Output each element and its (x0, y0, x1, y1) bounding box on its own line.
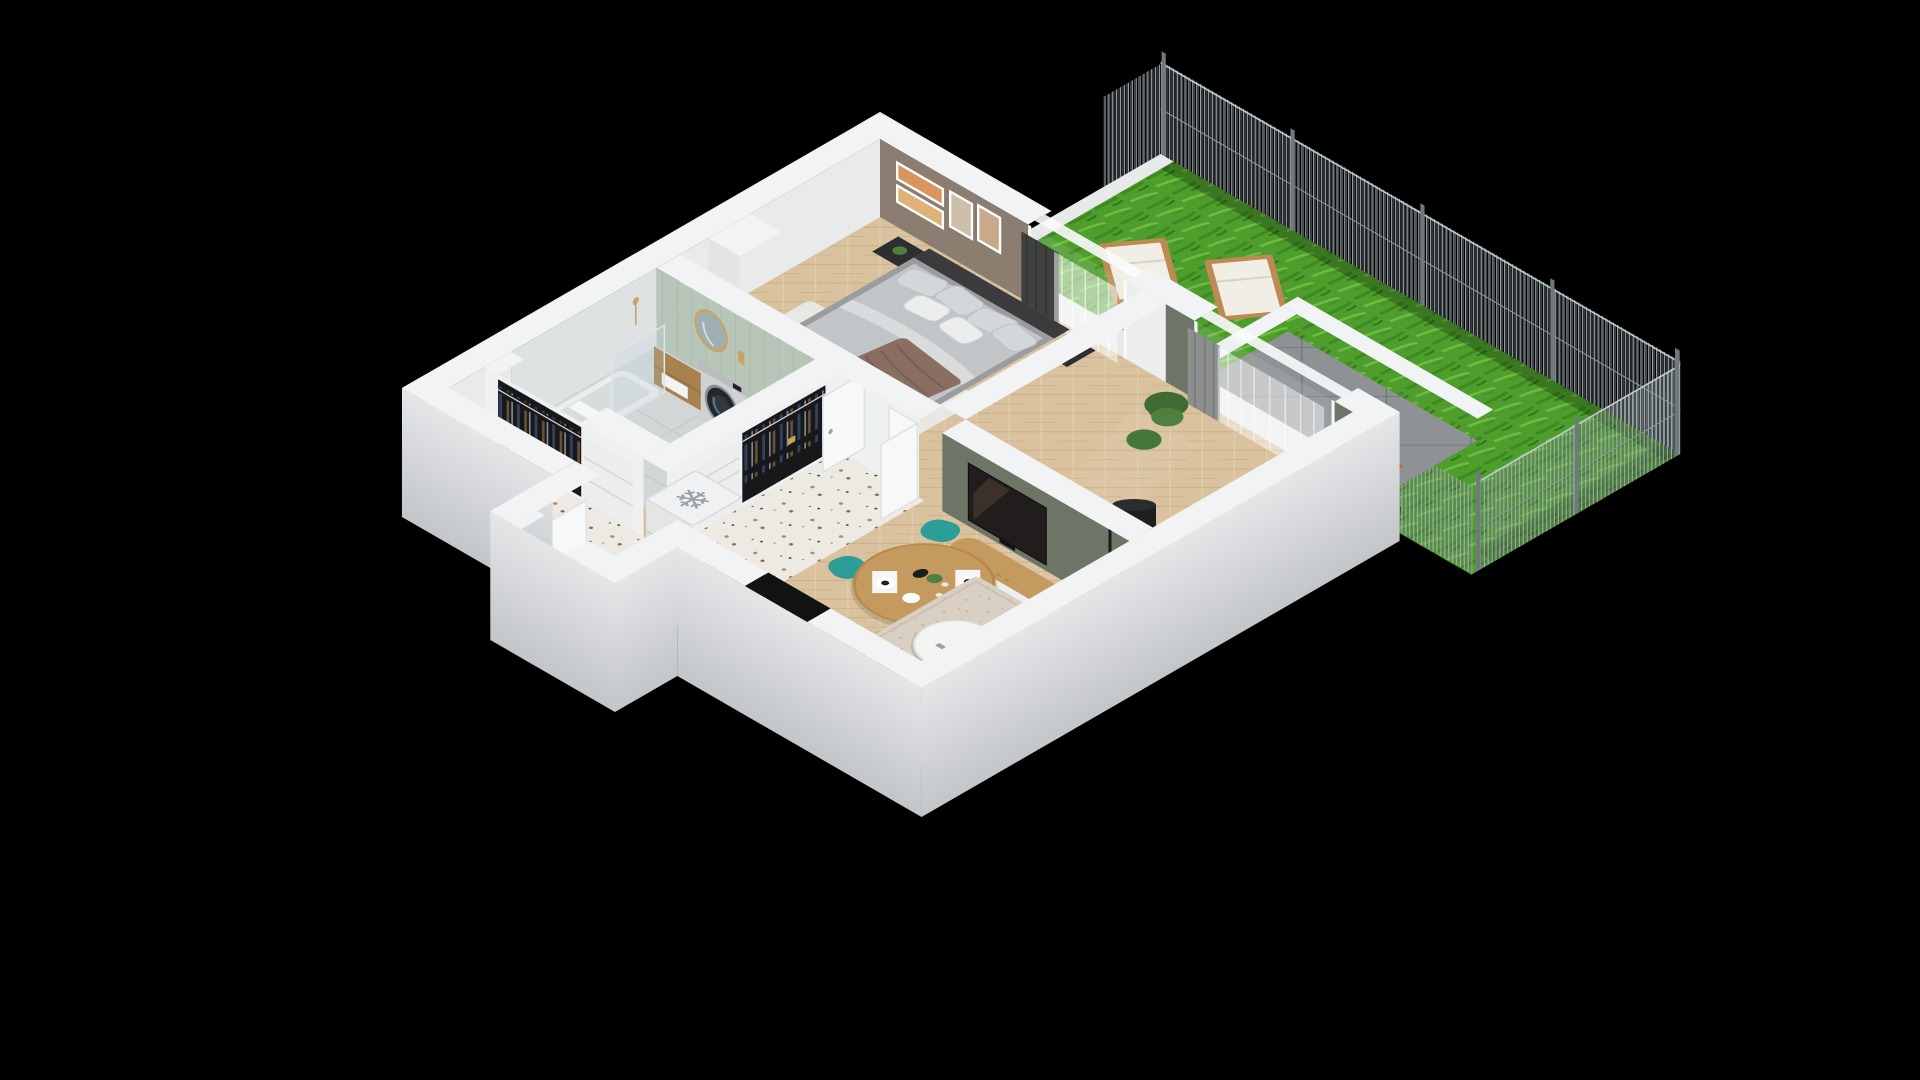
isometric-floorplan: ❄ (0, 0, 1920, 1080)
floorplan-canvas: ❄ (0, 0, 1920, 1080)
